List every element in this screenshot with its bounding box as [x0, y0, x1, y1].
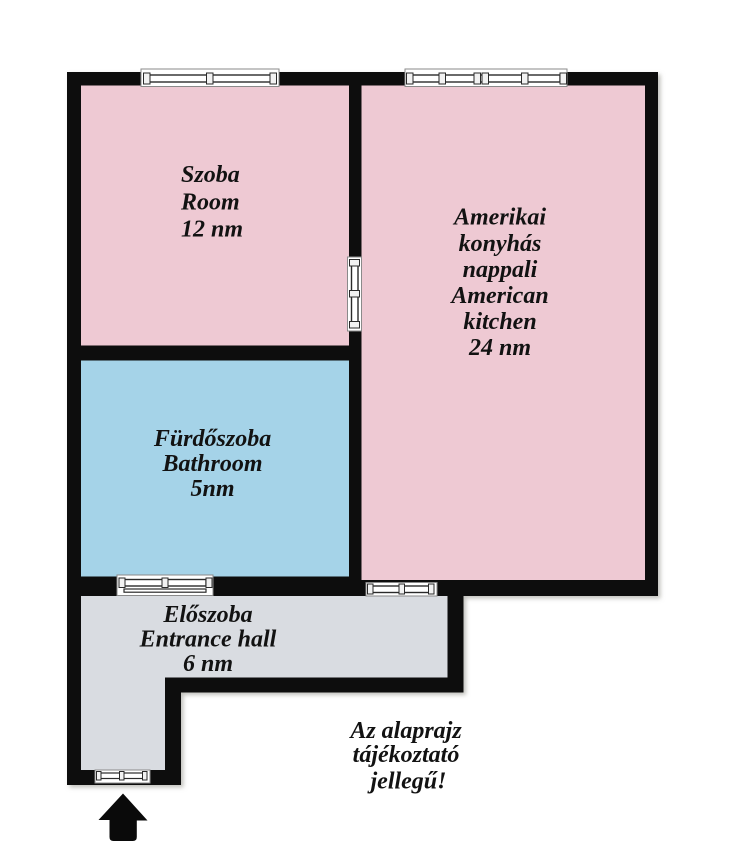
- svg-text:konyhás: konyhás: [459, 231, 542, 257]
- svg-text:jellegű!: jellegű!: [367, 769, 447, 795]
- svg-text:Előszoba: Előszoba: [162, 602, 252, 628]
- svg-text:American: American: [449, 283, 548, 309]
- svg-text:Entrance hall: Entrance hall: [139, 627, 277, 653]
- svg-text:Amerikai: Amerikai: [452, 205, 546, 231]
- svg-text:Bathroom: Bathroom: [161, 451, 262, 477]
- svg-text:24 nm: 24 nm: [468, 335, 531, 361]
- svg-text:5nm: 5nm: [190, 476, 234, 502]
- svg-text:Fürdőszoba: Fürdőszoba: [153, 426, 271, 452]
- svg-text:kitchen: kitchen: [463, 309, 536, 335]
- svg-text:Room: Room: [180, 189, 240, 215]
- svg-text:Szoba: Szoba: [181, 162, 240, 188]
- svg-text:Az alaprajz: Az alaprajz: [348, 718, 462, 744]
- svg-text:12 nm: 12 nm: [181, 217, 243, 243]
- svg-text:6 nm: 6 nm: [183, 651, 233, 677]
- svg-text:nappali: nappali: [463, 257, 538, 283]
- svg-text:tájékoztató: tájékoztató: [353, 742, 460, 768]
